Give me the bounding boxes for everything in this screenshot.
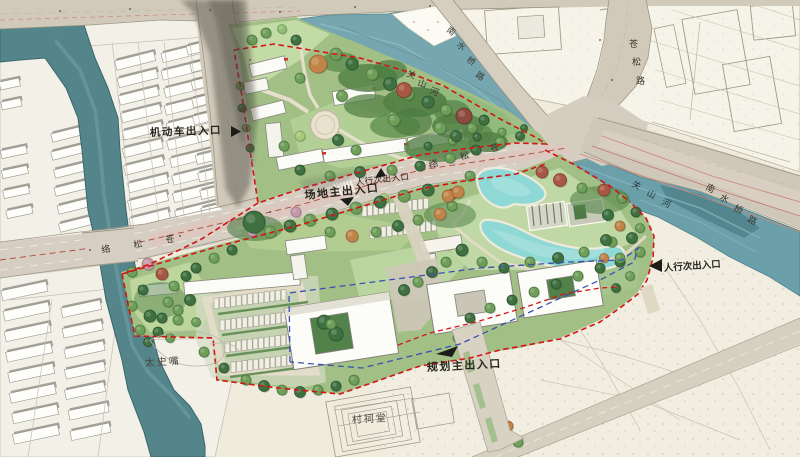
svg-text:苍: 苍 xyxy=(629,38,638,49)
svg-text:机动车出入口: 机动车出入口 xyxy=(150,123,222,139)
svg-text:络: 络 xyxy=(100,243,111,255)
svg-text:路: 路 xyxy=(636,75,645,86)
svg-text:苍: 苍 xyxy=(164,233,175,245)
svg-text:松: 松 xyxy=(132,238,143,250)
svg-text:松: 松 xyxy=(632,56,641,67)
